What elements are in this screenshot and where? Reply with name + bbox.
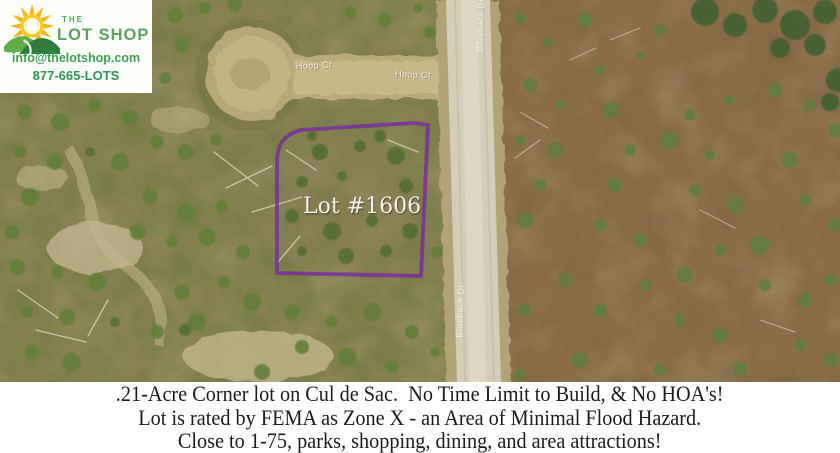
lot-label: Lot #1606 <box>303 194 421 219</box>
street-label-vertical-top: Blueback Dr <box>474 0 486 52</box>
sun-icon <box>4 1 60 55</box>
street-label-hoop-1: Hoop Ct <box>296 60 332 71</box>
brand-name: LOT SHOP <box>57 26 149 45</box>
street-label-hoop-2: Hoop Ct <box>395 69 431 80</box>
brand-the: THE <box>62 15 84 24</box>
brand-phone: 877-665-LOTS <box>0 68 152 83</box>
brand-email: info@thelotshop.com <box>0 51 152 65</box>
banner-line-3: Close to 1-75, parks, shopping, dining, … <box>178 429 662 453</box>
logo-card: THE LOT SHOP info@thelotshop.com 877-665… <box>0 0 152 93</box>
description-banner: .21-Acre Corner lot on Cul de Sac. No Ti… <box>0 382 840 453</box>
street-label-vertical-bottom: Blueback Dr <box>454 284 466 338</box>
listing-image: Lot #1606 Lot #1606 Hoop Ct Hoop Ct Hoop… <box>0 0 840 453</box>
banner-line-2: Lot is rated by FEMA as Zone X - an Area… <box>139 406 702 430</box>
banner-line-1: .21-Acre Corner lot on Cul de Sac. No Ti… <box>116 382 724 406</box>
